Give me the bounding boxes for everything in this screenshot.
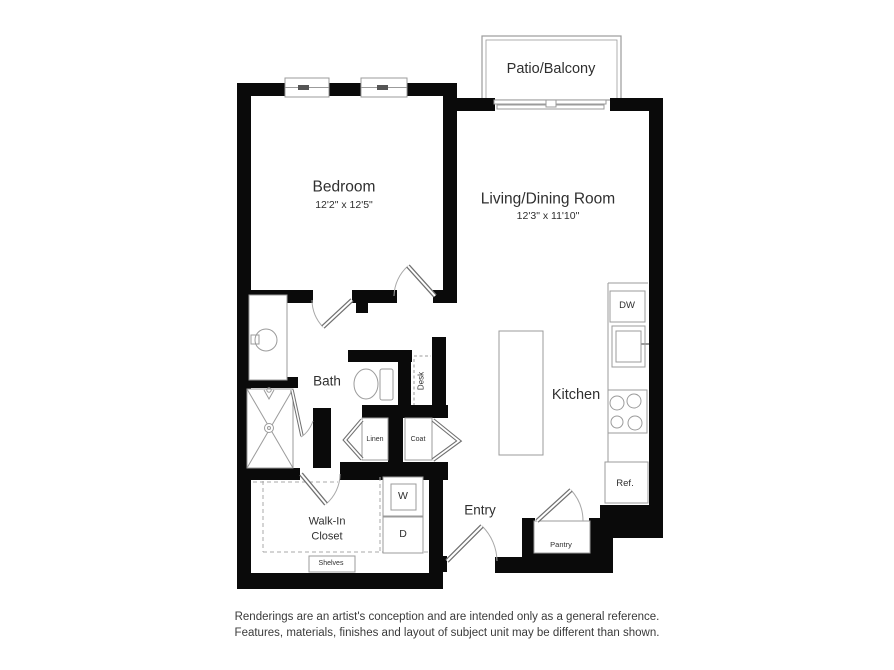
wall xyxy=(433,290,457,303)
pantry-door xyxy=(537,490,583,521)
entry-label: Entry xyxy=(464,504,496,519)
refrigerator-label: Ref. xyxy=(616,479,633,489)
wall xyxy=(443,83,457,293)
floor-plan-drawing xyxy=(0,0,894,670)
desk-label: Desk xyxy=(418,372,427,390)
wall xyxy=(251,468,300,480)
walk-in-closet-label: Walk-In Closet xyxy=(309,515,346,544)
wall xyxy=(522,518,535,556)
linen-bifold-door xyxy=(345,420,362,459)
living-dims: 12'3" x 11'10" xyxy=(517,211,580,223)
shower-door xyxy=(292,390,313,437)
coat-label: Coat xyxy=(411,436,426,444)
wall xyxy=(522,552,602,568)
entry-door xyxy=(447,526,497,561)
bedroom-window-1 xyxy=(285,78,329,97)
wall xyxy=(237,573,443,589)
wall xyxy=(327,83,363,96)
wall xyxy=(649,98,663,538)
wall xyxy=(388,410,403,465)
bedroom-label: Bedroom xyxy=(313,178,376,195)
bedroom-dims: 12'2" x 12'5" xyxy=(315,200,373,212)
pantry-label: Pantry xyxy=(550,541,572,549)
wall xyxy=(432,337,446,405)
disclaimer-line-2: Features, materials, finishes and layout… xyxy=(0,626,894,642)
vanity xyxy=(249,295,287,380)
shelves-label: Shelves xyxy=(319,560,344,568)
wall xyxy=(356,303,368,313)
kitchen-island xyxy=(499,331,543,455)
patio-label: Patio/Balcony xyxy=(507,62,596,78)
living-label: Living/Dining Room xyxy=(481,190,615,207)
stove xyxy=(608,390,647,433)
toilet xyxy=(354,369,393,400)
disclaimer: Renderings are an artist's conception an… xyxy=(0,610,894,641)
bath-label: Bath xyxy=(313,375,341,390)
wall xyxy=(362,405,448,418)
walls xyxy=(237,83,663,589)
floor-plan: Patio/Balcony Bedroom 12'2" x 12'5" Livi… xyxy=(0,0,894,670)
disclaimer-line-1: Renderings are an artist's conception an… xyxy=(0,610,894,626)
wall xyxy=(398,350,411,405)
wall xyxy=(313,408,331,468)
linen-label: Linen xyxy=(366,436,383,444)
dryer-label: D xyxy=(399,529,407,541)
living-room-door xyxy=(394,266,435,296)
bedroom-door xyxy=(312,300,352,327)
walk-in-closet-door xyxy=(301,474,340,504)
patio-sliding-door xyxy=(494,100,606,109)
kitchen-sink xyxy=(612,326,649,367)
dishwasher-label: DW xyxy=(619,301,635,311)
wall xyxy=(352,290,397,303)
washer-label: W xyxy=(398,491,408,503)
wall xyxy=(432,556,447,572)
kitchen-label: Kitchen xyxy=(552,388,600,404)
bedroom-window-2 xyxy=(361,78,407,97)
shower-drain xyxy=(265,424,274,433)
shower xyxy=(247,388,293,468)
coat-bifold-door xyxy=(433,420,459,460)
wall xyxy=(443,98,495,111)
